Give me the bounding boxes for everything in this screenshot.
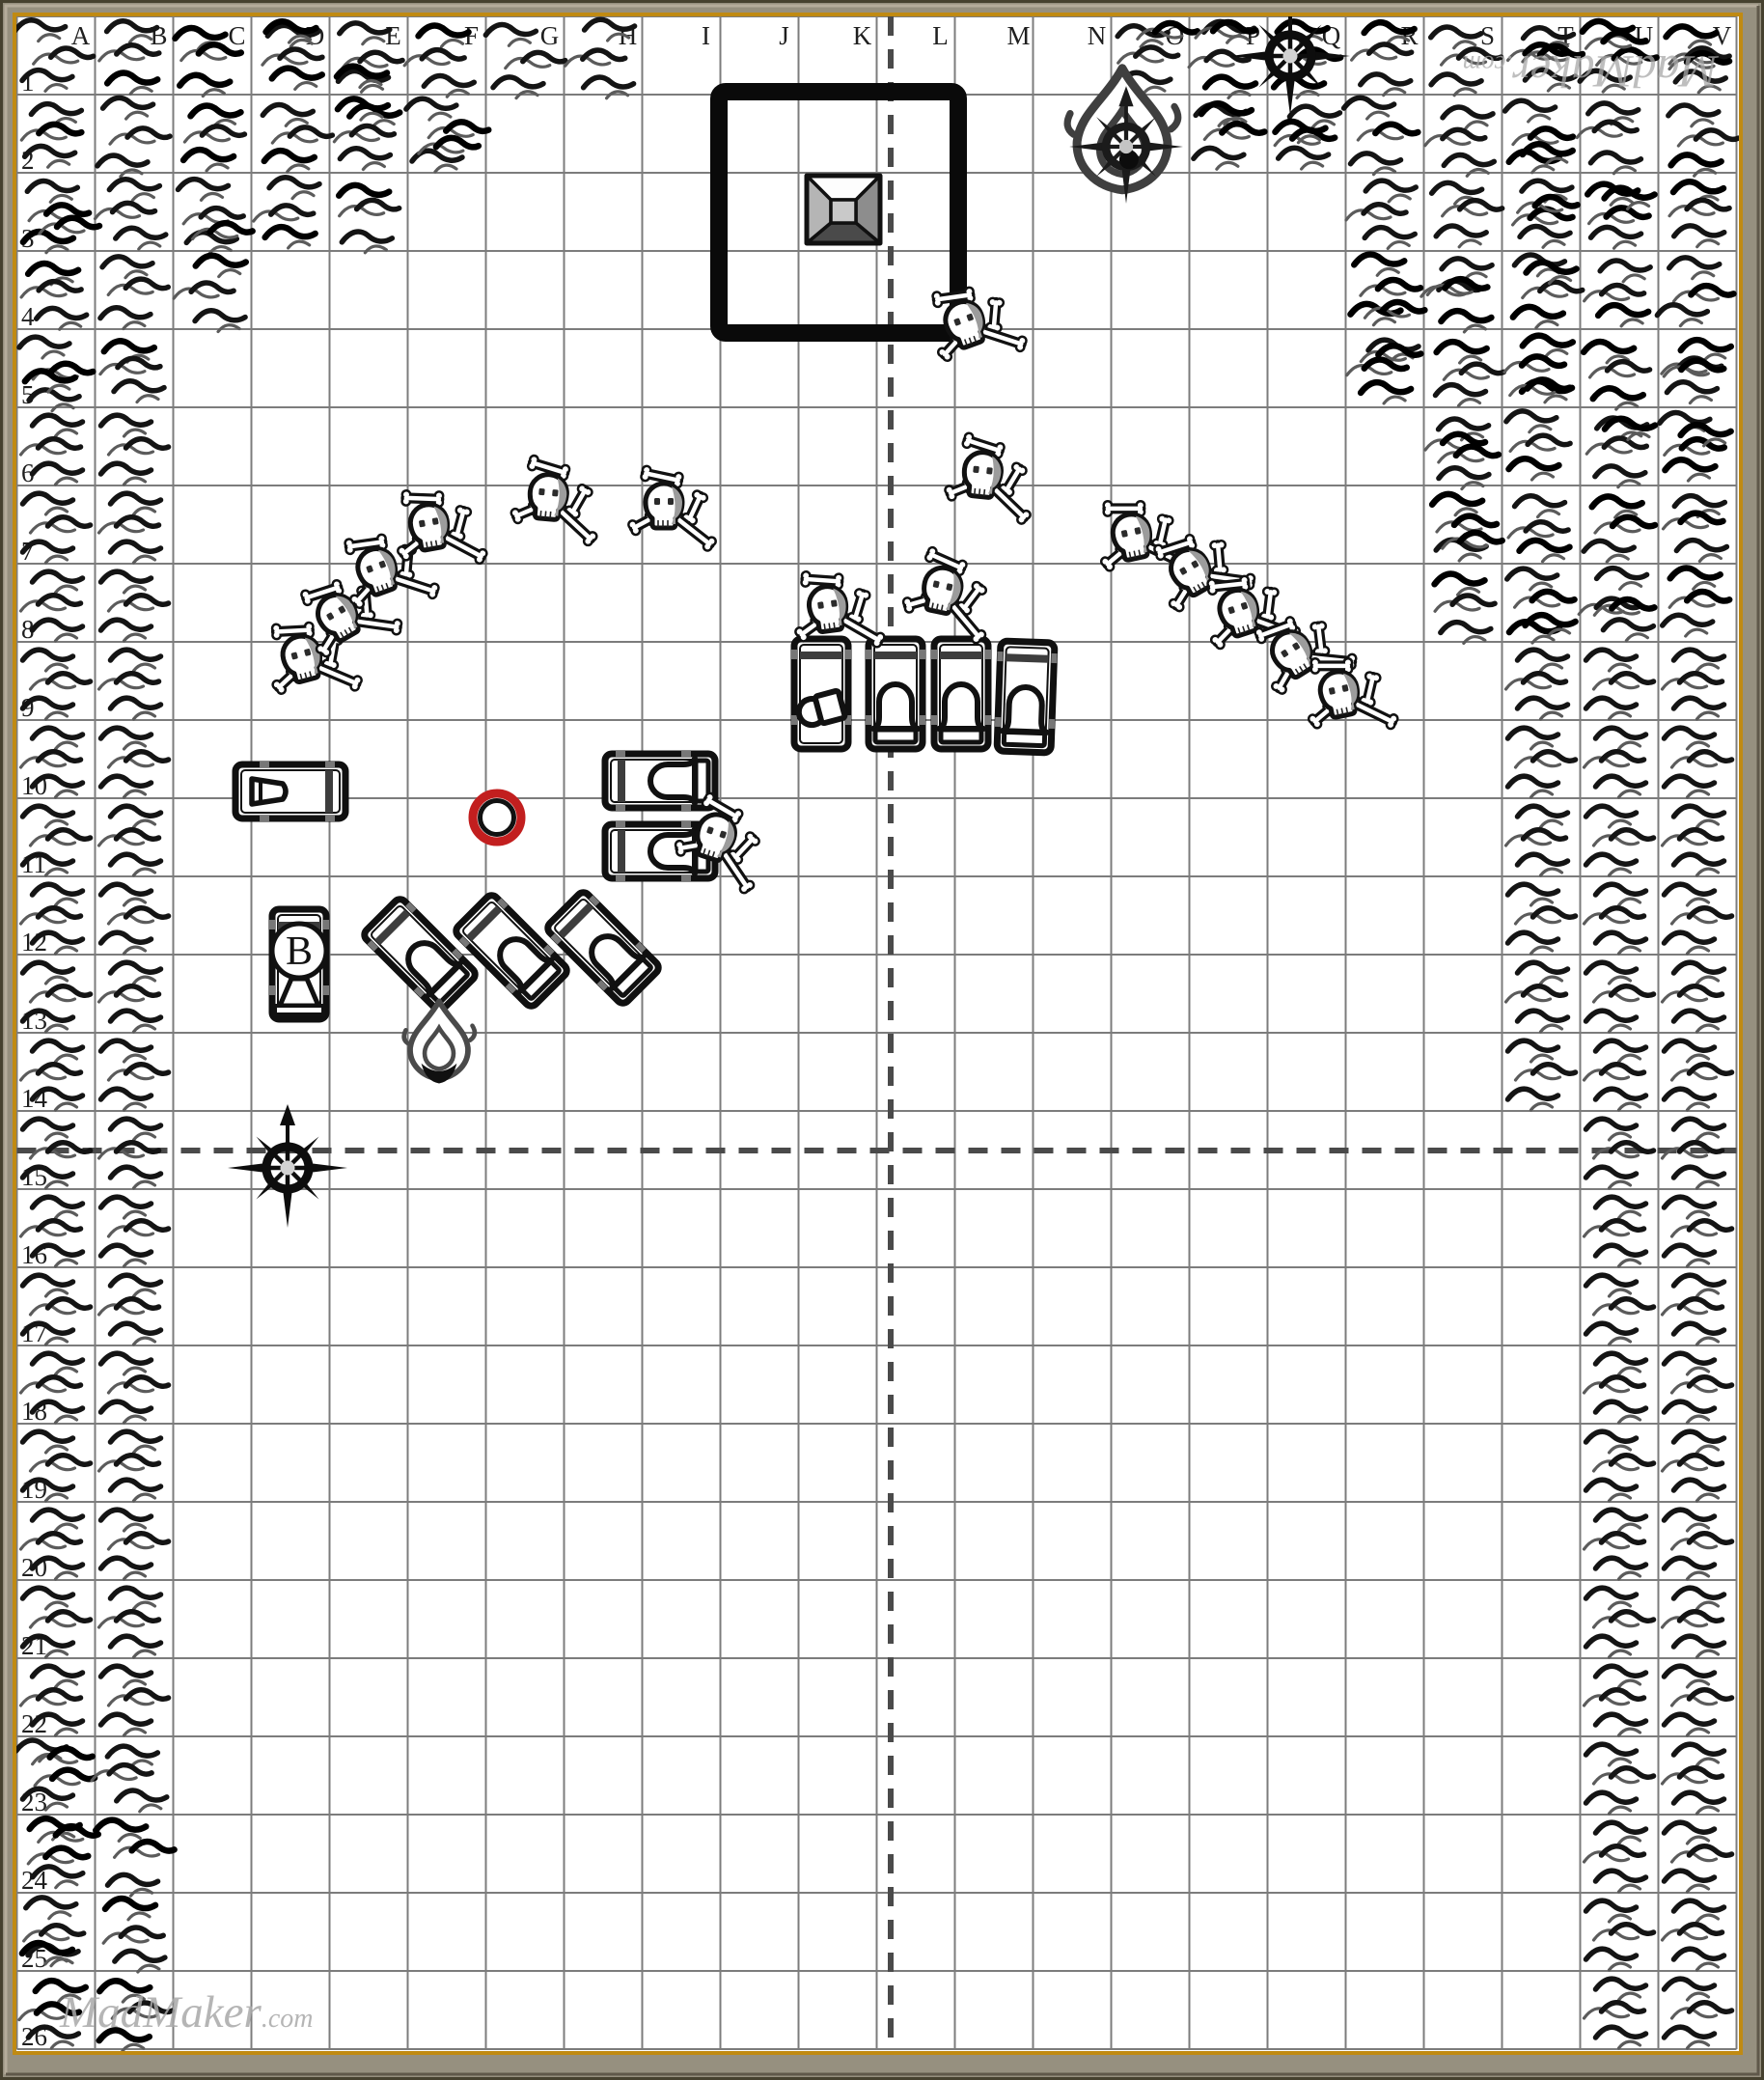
person-bench xyxy=(875,730,916,742)
boat-oarlock xyxy=(845,650,851,659)
boat-oarlock xyxy=(866,650,871,659)
boat-oarlock xyxy=(269,920,275,929)
frame-band xyxy=(0,2053,1764,2080)
boat-oarlock xyxy=(931,650,937,659)
grid-col-label: M xyxy=(1006,21,1030,50)
boat-oarlock xyxy=(616,875,625,881)
boat-bow-band xyxy=(325,770,333,813)
boat-oarlock xyxy=(616,751,625,757)
skull-eye xyxy=(419,520,426,528)
boat-oarlock xyxy=(681,875,691,881)
grid-col-label: J xyxy=(779,21,789,50)
red-ring-marker[interactable] xyxy=(473,793,521,842)
keg-boat-token[interactable] xyxy=(791,639,851,749)
boat-oarlock xyxy=(985,715,991,725)
bone-core xyxy=(994,302,996,327)
boat-oarlock xyxy=(323,985,329,995)
boat-oarlock xyxy=(985,650,991,659)
skull-teeth xyxy=(834,623,835,629)
bone-core xyxy=(1318,626,1321,652)
boat-bow-band xyxy=(618,830,625,873)
bone-core xyxy=(1268,592,1271,617)
skull-eye xyxy=(432,517,439,525)
grid-col-label: R xyxy=(1400,21,1418,50)
boat-oarlock xyxy=(681,821,691,827)
boat-oarlock xyxy=(997,652,1003,661)
grid-col-label: A xyxy=(71,21,91,50)
boat-oarlock xyxy=(1049,719,1055,729)
bone-core xyxy=(406,498,439,499)
boat-oarlock xyxy=(616,805,625,811)
bone-core xyxy=(1218,545,1220,570)
skull-head xyxy=(646,484,682,528)
skull-eye xyxy=(668,498,674,505)
grid-col-label: C xyxy=(228,21,245,50)
skull-teeth xyxy=(824,624,825,630)
boat-oarlock xyxy=(681,751,691,757)
grid-col-label: N xyxy=(1088,21,1107,50)
grid-row-label: 4 xyxy=(21,302,35,331)
skull-teeth xyxy=(545,512,546,518)
boat-oarlock xyxy=(791,650,797,659)
skull-teeth xyxy=(540,511,541,517)
boat-oarlock xyxy=(920,650,925,659)
skull-eye xyxy=(817,601,824,609)
boat-oarlock xyxy=(325,816,335,821)
chair-boat-token[interactable] xyxy=(235,762,345,821)
person-bench xyxy=(1004,732,1044,745)
boat-oarlock xyxy=(260,762,269,767)
boat-oarlock xyxy=(791,715,797,725)
boat-oarlock xyxy=(866,715,871,725)
person-figure xyxy=(939,684,983,742)
person-torso xyxy=(939,684,983,729)
grid-col-label: E xyxy=(385,21,401,50)
boat-oarlock xyxy=(681,805,691,811)
skull-eye xyxy=(552,489,559,496)
skull-teeth xyxy=(979,488,980,495)
boat-oarlock xyxy=(269,985,275,995)
grid-col-label: P xyxy=(1246,21,1260,50)
boat-oarlock xyxy=(920,715,925,725)
person-bench xyxy=(275,1006,323,1014)
boat-oarlock xyxy=(931,715,937,725)
frame-band xyxy=(1741,0,1764,2080)
skull-teeth xyxy=(829,624,830,630)
battle-map-canvas: ABCDEFGHIJKLMNOPQRSTUV123456789101112131… xyxy=(0,0,1764,2080)
boat-oarlock xyxy=(260,816,269,821)
skull-eye xyxy=(831,599,838,607)
person-torso xyxy=(650,759,695,803)
person-figure xyxy=(873,684,918,742)
chair-body xyxy=(252,779,286,804)
grid-col-label: K xyxy=(853,21,872,50)
person-torso xyxy=(873,684,918,729)
grid-col-label: B xyxy=(150,21,167,50)
map-content-layer: ABCDEFGHIJKLMNOPQRSTUV123456789101112131… xyxy=(15,0,1739,2051)
grid-col-label: G xyxy=(540,21,560,50)
grid-col-label: L xyxy=(932,21,949,50)
compass-hub xyxy=(281,1161,295,1176)
skull-eye xyxy=(538,488,545,495)
boat-bow-band xyxy=(940,652,982,659)
compass-hub xyxy=(1283,49,1298,64)
grid-col-label: Q xyxy=(1322,21,1341,50)
grid-col-label: I xyxy=(702,21,710,50)
skull-eye xyxy=(654,498,660,505)
boat-oarlock xyxy=(325,762,335,767)
boat-oarlock xyxy=(323,920,329,929)
keg-body xyxy=(814,690,845,723)
compass-hub xyxy=(1119,140,1133,153)
boat-bow-band xyxy=(800,652,842,659)
bone-core xyxy=(806,579,839,581)
token-letter-label: B xyxy=(286,929,313,974)
pyramid-apex xyxy=(831,200,856,223)
skull-eye xyxy=(986,467,993,475)
boat-bow-band xyxy=(618,760,625,802)
bone-core xyxy=(276,630,309,632)
boat-bow-band xyxy=(874,652,917,659)
boat-oarlock xyxy=(1051,653,1057,663)
pyramid-icon xyxy=(807,176,880,243)
skull-teeth xyxy=(975,488,976,495)
person-bench xyxy=(941,730,981,742)
boat-token[interactable] xyxy=(605,751,715,811)
chair-icon xyxy=(252,779,286,804)
boat-token[interactable] xyxy=(931,639,991,749)
person-figure xyxy=(650,759,708,803)
skull-teeth xyxy=(550,512,551,518)
skull-teeth xyxy=(984,489,985,496)
boat-bow-band xyxy=(1006,653,1048,663)
lettered-boat-token[interactable]: B xyxy=(269,909,329,1019)
boat-oarlock xyxy=(616,821,625,827)
boat-token[interactable] xyxy=(866,639,925,749)
skull-eye xyxy=(973,466,979,474)
boat-oarlock xyxy=(995,717,1001,727)
boat-token[interactable] xyxy=(994,641,1058,753)
battle-map-stage: ABCDEFGHIJKLMNOPQRSTUV123456789101112131… xyxy=(0,0,1764,2080)
person-figure xyxy=(1002,686,1048,746)
